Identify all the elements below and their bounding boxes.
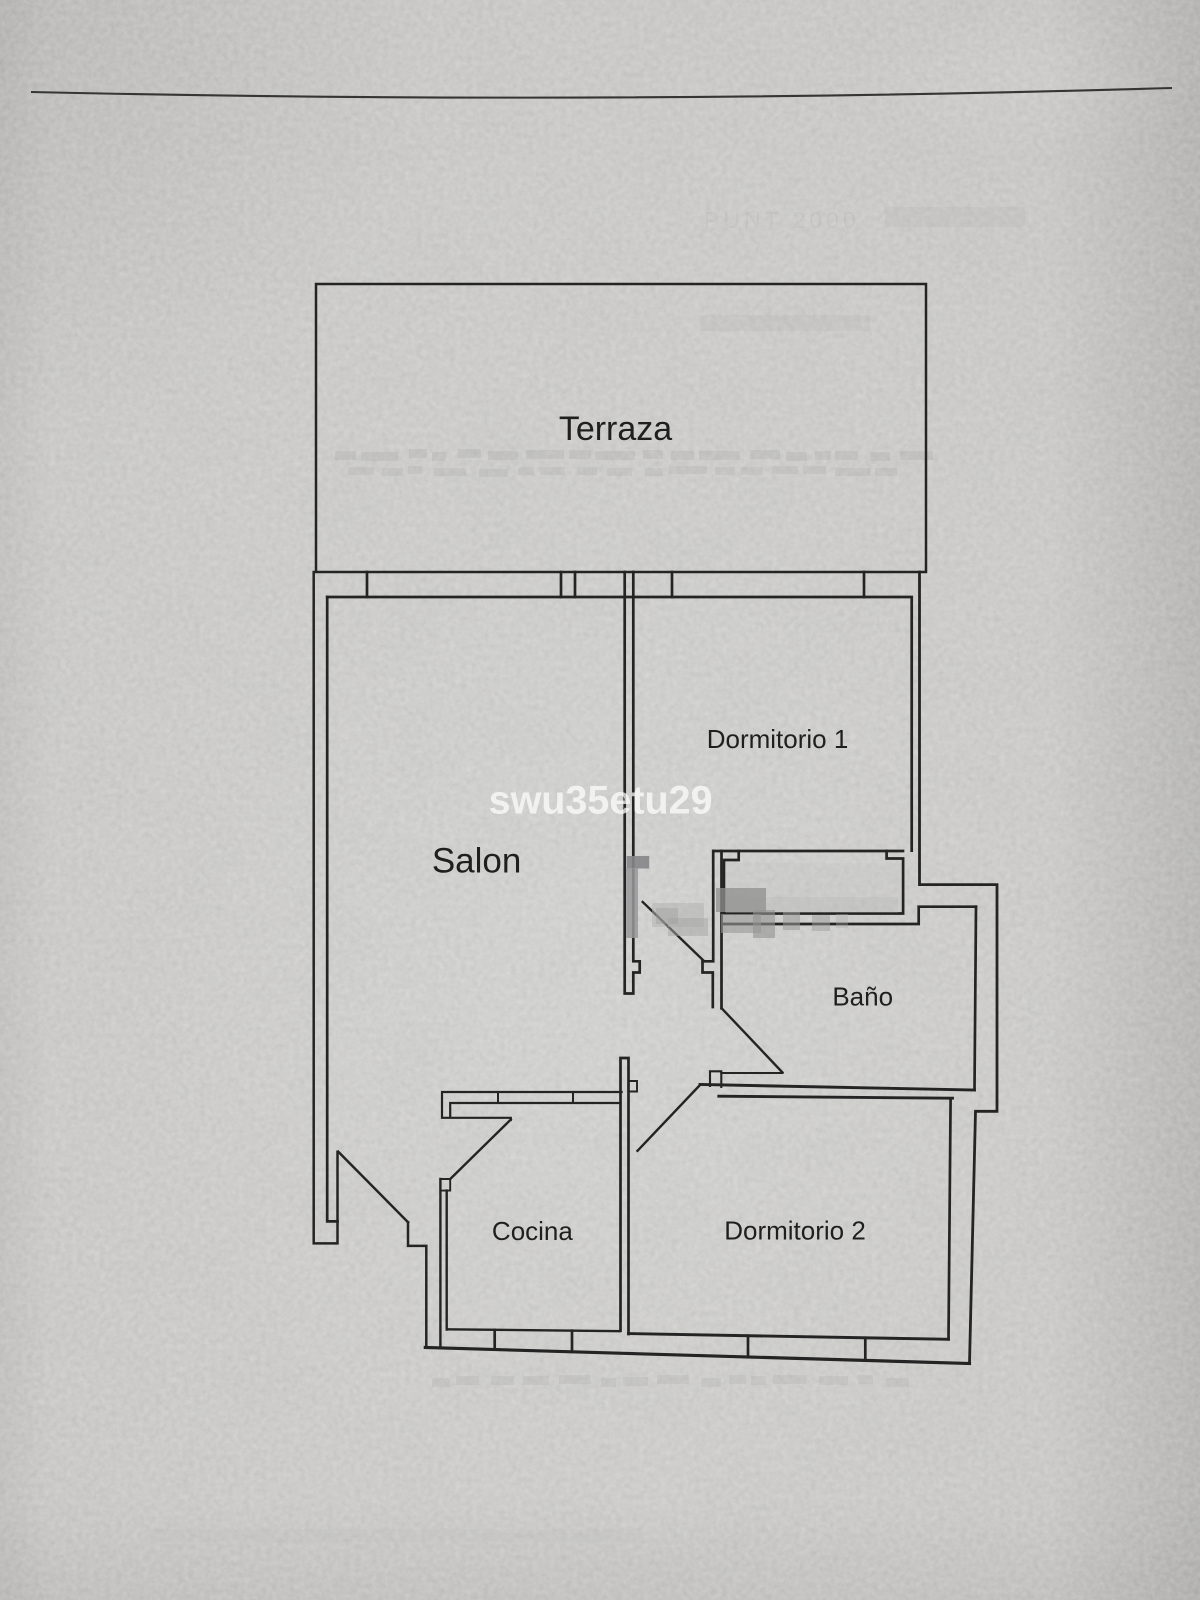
svg-text:Salon: Salon [432,842,522,881]
svg-text:Terraza: Terraza [559,410,672,448]
svg-text:Dormitorio 1: Dormitorio 1 [707,724,849,754]
svg-text:swu35etu29: swu35etu29 [489,779,713,823]
svg-text:Baño: Baño [832,981,893,1011]
svg-text:Cocina: Cocina [492,1216,573,1246]
svg-text:PUNT 2000: PUNT 2000 [704,207,860,233]
svg-text:Dormitorio 2: Dormitorio 2 [724,1215,866,1245]
